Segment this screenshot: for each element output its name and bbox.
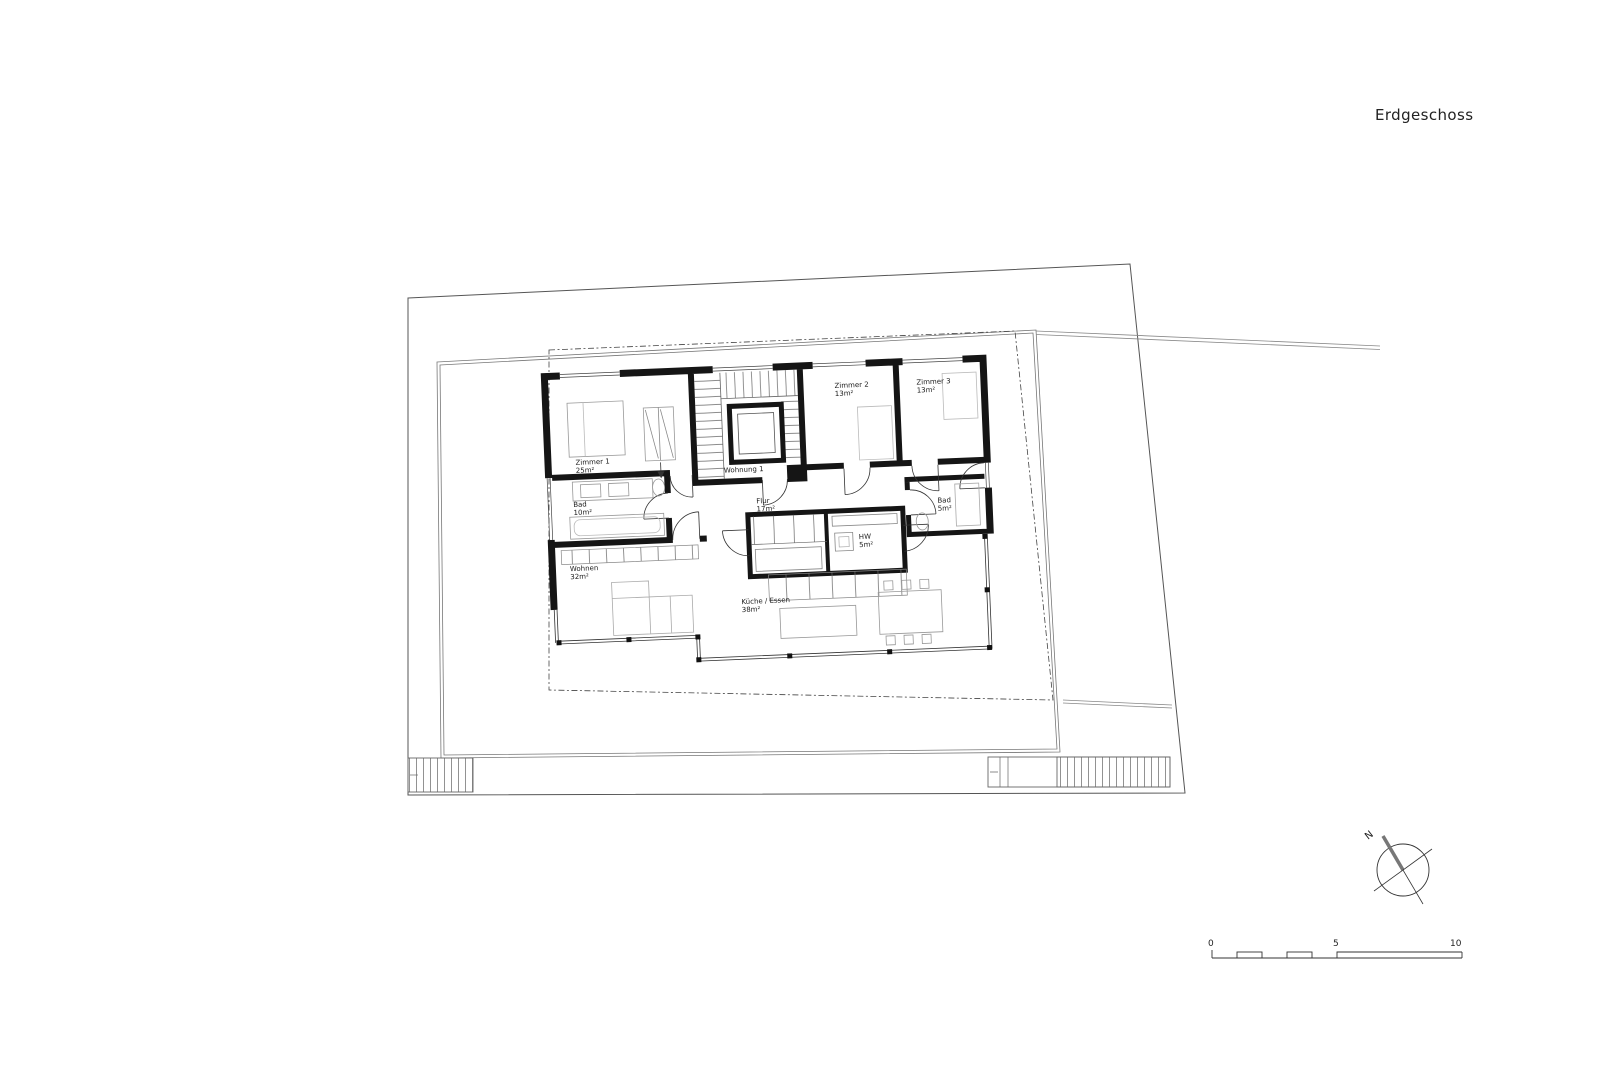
utility-partition [826, 511, 829, 573]
unit-label: Wohnung 1 [724, 465, 764, 475]
cabinet-cells [750, 513, 827, 544]
north-arrow: N [1363, 829, 1432, 904]
drawing-sheet: Erdgeschoss [0, 0, 1600, 1068]
svg-text:5m²: 5m² [938, 504, 953, 513]
stair-flight-top [720, 370, 798, 399]
svg-text:5m²: 5m² [859, 541, 874, 550]
dining-table [878, 590, 943, 635]
apartment-plan: Zimmer 1 25m² Bad 10m² Wohnen 32m² Flur … [541, 355, 999, 669]
north-pointer [1383, 836, 1403, 870]
stair-flight-left [694, 375, 724, 480]
north-label: N [1363, 829, 1376, 842]
sofa [612, 579, 694, 635]
svg-text:Küche / Essen: Küche / Essen [741, 596, 790, 606]
svg-text:17m²: 17m² [756, 505, 775, 514]
svg-text:25m²: 25m² [576, 466, 595, 475]
room-label-bad1: Bad 10m² [573, 500, 592, 517]
scale-label-10: 10 [1450, 939, 1462, 949]
page-title: Erdgeschoss [1375, 106, 1473, 124]
window-lines-left [547, 478, 553, 540]
svg-text:Wohnung 1: Wohnung 1 [724, 465, 764, 475]
exterior-stair-left [408, 758, 473, 792]
room-label-wohnen: Wohnen 32m² [570, 564, 599, 581]
kitchen-island [780, 605, 857, 638]
room-label-zimmer3: Zimmer 3 13m² [916, 377, 951, 394]
room-label-zimmer1: Zimmer 1 25m² [575, 457, 610, 474]
scale-bar: 0 5 10 [1208, 939, 1462, 958]
toilet [652, 479, 665, 496]
svg-text:13m²: 13m² [917, 386, 936, 395]
room-label-kueche: Küche / Essen 38m² [741, 596, 790, 614]
scale-label-0: 0 [1208, 939, 1214, 949]
utility-block [748, 508, 905, 576]
shelf-row [561, 545, 698, 565]
svg-text:32m²: 32m² [570, 572, 589, 581]
bed [567, 401, 625, 457]
svg-text:13m²: 13m² [835, 389, 854, 398]
staircase [694, 370, 801, 480]
window-lines-right [985, 463, 989, 488]
room-label-bad2: Bad 5m² [937, 496, 952, 513]
room-label-flur: Flur 17m² [756, 497, 775, 514]
room-label-zimmer2: Zimmer 2 13m² [834, 381, 869, 398]
exterior-stair-right [988, 757, 1170, 787]
toilet-2 [916, 513, 929, 530]
shower [955, 483, 981, 526]
neighbour-boundary-lines [1036, 331, 1380, 708]
scale-label-5: 5 [1333, 939, 1339, 949]
wardrobe [643, 407, 676, 479]
zimmer2-furniture [857, 406, 893, 460]
svg-text:38m²: 38m² [742, 605, 761, 614]
floor-plan-canvas: Erdgeschoss [0, 0, 1600, 1068]
svg-text:10m²: 10m² [573, 508, 592, 517]
